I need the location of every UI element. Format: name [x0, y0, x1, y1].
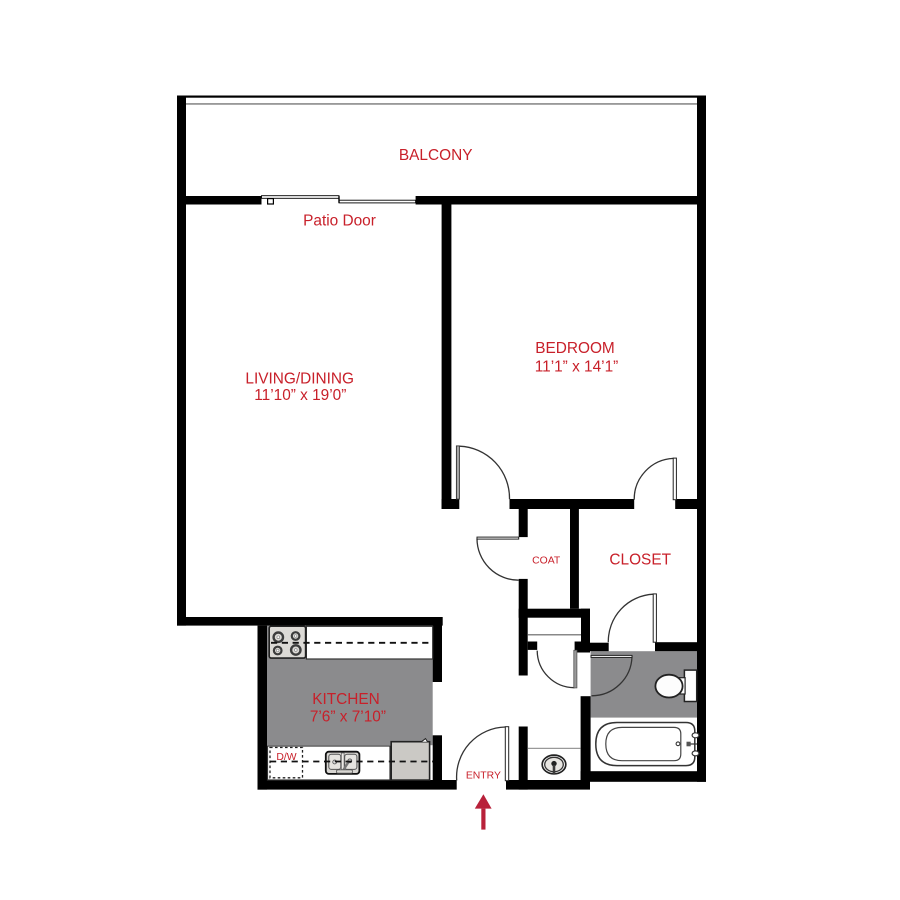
svg-text:Patio Door: Patio Door — [303, 213, 376, 230]
svg-text:BALCONY: BALCONY — [399, 147, 473, 164]
svg-text:KITCHEN: KITCHEN — [312, 691, 380, 708]
svg-text:11’1” x 14’1”: 11’1” x 14’1” — [535, 359, 619, 376]
svg-text:ENTRY: ENTRY — [466, 771, 501, 782]
svg-text:CLOSET: CLOSET — [609, 552, 671, 569]
svg-text:11’10” x 19’0”: 11’10” x 19’0” — [254, 387, 346, 404]
svg-text:BEDROOM: BEDROOM — [535, 340, 615, 357]
svg-text:LIVING/DINING: LIVING/DINING — [245, 371, 354, 388]
svg-text:7’6” x 7’10”: 7’6” x 7’10” — [310, 709, 386, 726]
svg-text:COAT: COAT — [532, 556, 561, 567]
